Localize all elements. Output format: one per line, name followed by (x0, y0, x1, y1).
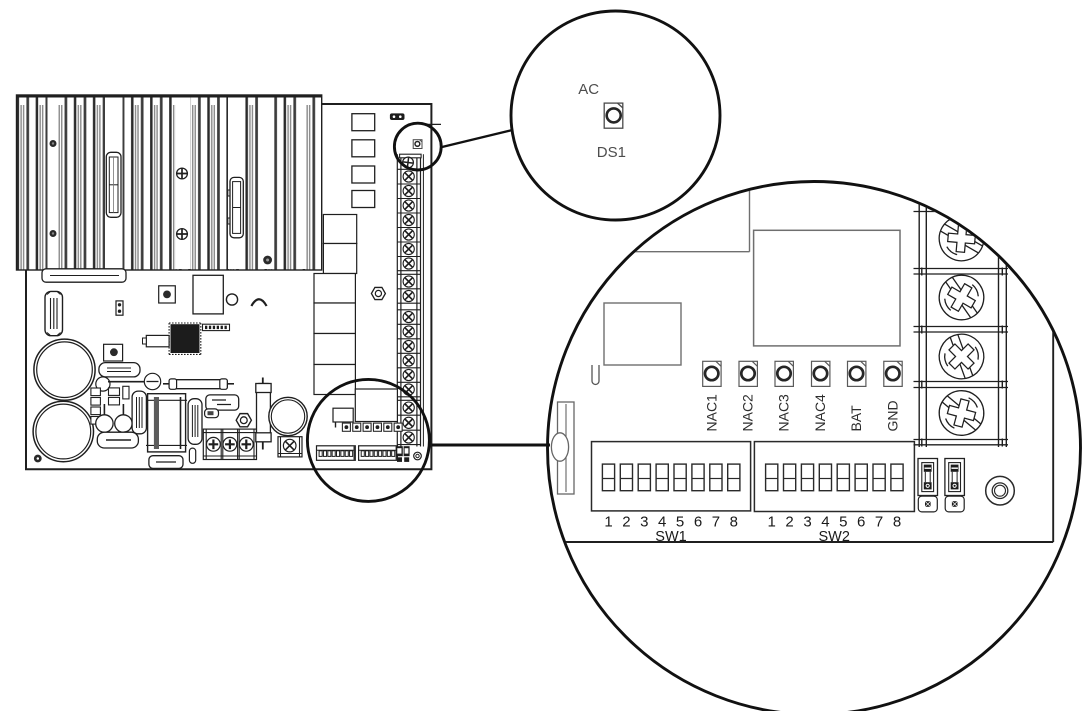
svg-text:DS1: DS1 (597, 144, 626, 161)
svg-text:NAC4: NAC4 (812, 394, 828, 432)
svg-text:2: 2 (785, 514, 793, 531)
svg-text:NAC3: NAC3 (776, 394, 792, 432)
svg-text:7: 7 (712, 514, 720, 531)
svg-text:1: 1 (604, 514, 612, 531)
svg-text:2: 2 (622, 514, 630, 531)
svg-text:NAC1: NAC1 (703, 394, 719, 432)
svg-text:AC: AC (578, 81, 599, 98)
svg-text:8: 8 (893, 514, 901, 531)
svg-text:BAT: BAT (848, 405, 864, 432)
svg-text:8: 8 (730, 514, 738, 531)
svg-text:6: 6 (694, 514, 702, 531)
svg-text:NAC2: NAC2 (740, 394, 756, 432)
svg-text:GND: GND (885, 400, 901, 431)
svg-text:1: 1 (768, 514, 776, 531)
svg-text:3: 3 (640, 514, 648, 531)
svg-text:6: 6 (857, 514, 865, 531)
svg-text:3: 3 (803, 514, 811, 531)
svg-text:7: 7 (875, 514, 883, 531)
